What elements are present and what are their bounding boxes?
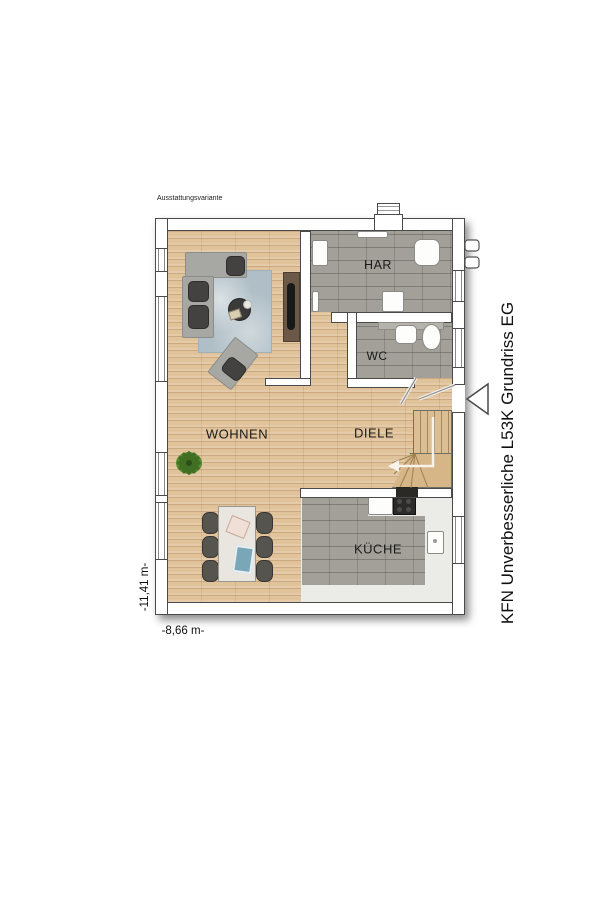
wall-diele-kueche (300, 488, 452, 498)
variant-caption: Ausstattungsvariante (157, 195, 222, 202)
wc-toilet (422, 324, 441, 350)
har-appliance (382, 291, 404, 312)
window (156, 296, 167, 382)
dining-chair (202, 512, 219, 534)
chimney (374, 214, 403, 231)
entrance-door-opening (452, 384, 465, 413)
room-label-wohnen: WOHNEN (206, 427, 268, 442)
kitchen-counter (368, 496, 393, 515)
width-dimension-label: -8,66 m- (148, 625, 218, 639)
dining-chair (256, 512, 273, 534)
exterior-downpipe-brackets (465, 240, 479, 268)
sofa-cushion (188, 305, 209, 329)
window (453, 516, 464, 564)
window (453, 270, 464, 302)
washing-machine (312, 240, 328, 266)
room-label-diele: DIELE (354, 426, 394, 441)
cooktop-burner (406, 507, 411, 512)
window (453, 328, 464, 368)
wall-wohnen-har (300, 231, 311, 385)
serving-tray (232, 545, 255, 574)
room-label-har: HAR (364, 258, 392, 272)
staircase-upper-run (413, 410, 452, 455)
window (156, 248, 167, 272)
sofa-cushion (188, 281, 209, 302)
cooktop (393, 495, 416, 515)
floor-plan-page: Ausstattungsvariante (0, 0, 600, 900)
cooktop-burner (406, 499, 411, 504)
har-door-leaf (312, 291, 319, 312)
dining-chair (256, 536, 273, 558)
heat-pump-unit (414, 239, 440, 266)
wall-wc-left (347, 312, 357, 388)
window (156, 452, 167, 496)
wall-wc-bottom (347, 378, 415, 388)
cooktop-burner (397, 507, 402, 512)
tv-screen (287, 283, 295, 330)
dining-chair (202, 560, 219, 582)
room-label-wc: WC (367, 349, 388, 363)
wall-stub-wohnen-diele (265, 378, 311, 386)
sofa-cushion (226, 256, 245, 276)
wall-dark-niche (396, 488, 418, 497)
cooktop-burner (397, 499, 402, 504)
har-wall-niche (357, 231, 388, 238)
wall-outer-top (155, 218, 465, 231)
wc-sink (395, 325, 417, 344)
decor-ball (243, 300, 252, 309)
window (156, 502, 167, 560)
entrance-arrow-icon (467, 384, 488, 414)
dining-chair (202, 536, 219, 558)
kitchen-faucet (433, 539, 437, 543)
room-label-kueche: KÜCHE (354, 542, 402, 557)
wall-outer-bottom (155, 602, 465, 615)
chimney-cap (377, 203, 400, 215)
kueche-tile-upper (302, 497, 368, 517)
dining-chair (256, 560, 273, 582)
plan-title: KFN Unverbesserliche L53K Grundriss EG (498, 298, 520, 628)
